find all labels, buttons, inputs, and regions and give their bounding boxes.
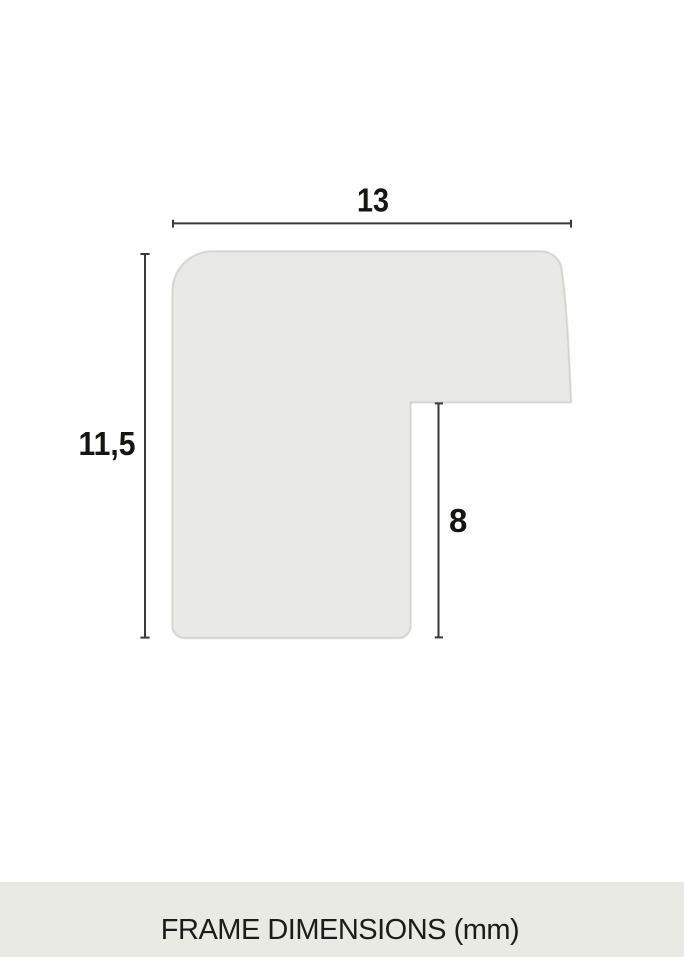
svg-text:13: 13 [357,181,389,218]
svg-text:8: 8 [449,502,467,539]
svg-text:11,5: 11,5 [79,425,136,462]
